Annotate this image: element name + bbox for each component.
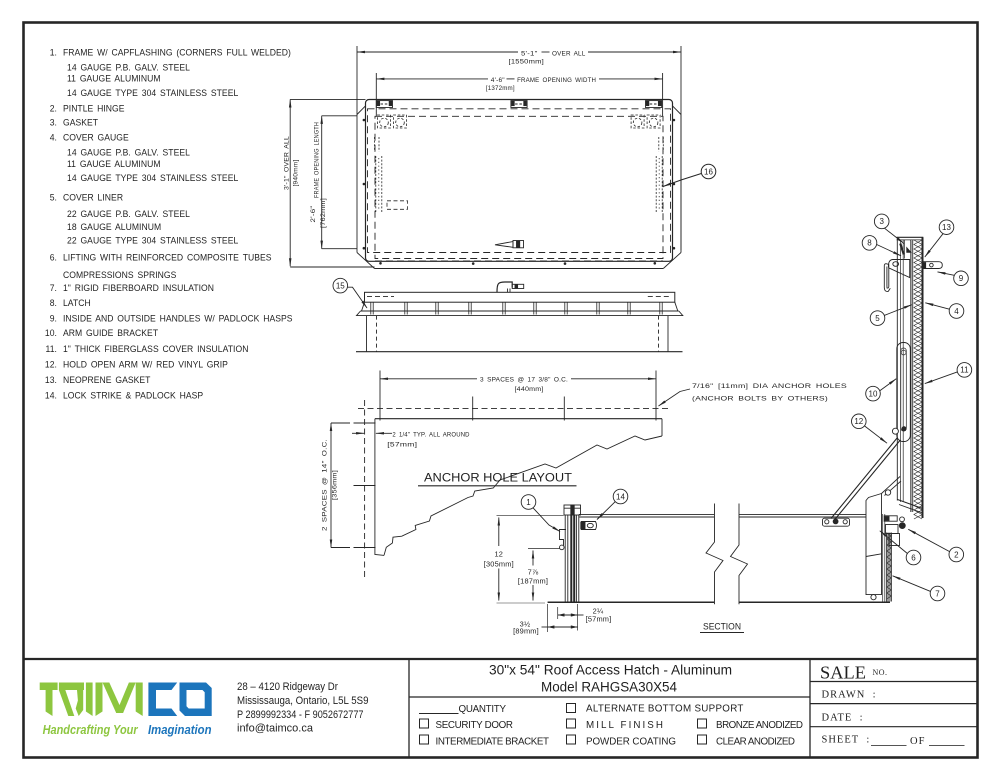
svg-text:COVER LINER: COVER LINER xyxy=(63,192,124,202)
svg-text:11: 11 xyxy=(960,366,969,375)
svg-text:3'-1" OVER ALL: 3'-1" OVER ALL xyxy=(284,136,291,190)
svg-text:11.: 11. xyxy=(46,344,57,354)
svg-text:5: 5 xyxy=(875,314,880,323)
svg-text:6: 6 xyxy=(911,553,916,562)
svg-text:GASKET: GASKET xyxy=(63,117,99,127)
svg-text:4: 4 xyxy=(954,307,959,316)
svg-text:FRAME OPENING LENGTH: FRAME OPENING LENGTH xyxy=(314,122,321,198)
svg-text:12: 12 xyxy=(494,550,503,559)
svg-text:3.: 3. xyxy=(50,117,57,127)
svg-text:SECURITY DOOR: SECURITY DOOR xyxy=(436,720,514,731)
svg-text:12: 12 xyxy=(854,417,863,426)
svg-text:DRAWN :: DRAWN : xyxy=(822,690,877,701)
svg-text:8: 8 xyxy=(867,239,872,248)
svg-text:3 SPACES @ 17 3/8" O.C.: 3 SPACES @ 17 3/8" O.C. xyxy=(480,376,568,383)
svg-text:7/16" [11mm] DIA ANCHOR HOLES: 7/16" [11mm] DIA ANCHOR HOLES xyxy=(692,383,847,390)
svg-text:INSIDE AND OUTSIDE HANDLES W/: INSIDE AND OUTSIDE HANDLES W/ PADLOCK HA… xyxy=(63,313,293,323)
svg-text:Mississauga, Ontario, L5L 5S9: Mississauga, Ontario, L5L 5S9 xyxy=(237,695,369,707)
svg-text:8.: 8. xyxy=(50,298,57,308)
svg-text:[1550mm]: [1550mm] xyxy=(509,59,545,66)
svg-text:MILL FINISH: MILL FINISH xyxy=(586,720,663,731)
svg-text:Imagination: Imagination xyxy=(148,723,212,737)
svg-text:9: 9 xyxy=(959,274,964,283)
svg-text:1" RIGID FIBERBOARD INSULATION: 1" RIGID FIBERBOARD INSULATION xyxy=(63,283,214,293)
svg-text:[187mm]: [187mm] xyxy=(518,577,548,586)
svg-text:4.: 4. xyxy=(50,132,57,142)
svg-text:12.: 12. xyxy=(45,359,57,369)
svg-text:16: 16 xyxy=(704,167,713,176)
svg-text:7⅞: 7⅞ xyxy=(528,568,539,577)
svg-text:14 GAUGE TYPE 304 STAINLESS ST: 14 GAUGE TYPE 304 STAINLESS STEEL xyxy=(67,88,238,98)
svg-text:7.: 7. xyxy=(50,283,57,293)
svg-text:[356mm]: [356mm] xyxy=(332,470,339,500)
svg-text:[440mm]: [440mm] xyxy=(515,386,544,393)
svg-text:10: 10 xyxy=(869,389,878,398)
svg-text:14 GAUGE P.B. GALV. STEEL: 14 GAUGE P.B. GALV. STEEL xyxy=(67,147,190,157)
svg-text:14 GAUGE P.B. GALV. STEEL: 14 GAUGE P.B. GALV. STEEL xyxy=(67,62,190,72)
svg-text:2 SPACES @ 14" O.C.: 2 SPACES @ 14" O.C. xyxy=(322,439,329,531)
svg-text:1" THICK FIBERGLASS COVER INSU: 1" THICK FIBERGLASS COVER INSULATION xyxy=(63,344,248,354)
svg-text:13.: 13. xyxy=(45,375,57,385)
svg-text:11 GAUGE ALUMINUM: 11 GAUGE ALUMINUM xyxy=(67,73,161,83)
svg-text:14 GAUGE TYPE 304 STAINLESS ST: 14 GAUGE TYPE 304 STAINLESS STEEL xyxy=(67,173,238,183)
svg-text:22 GAUGE TYPE 304 STAINLESS ST: 22 GAUGE TYPE 304 STAINLESS STEEL xyxy=(67,235,238,245)
svg-text:info@taimco.ca: info@taimco.ca xyxy=(237,723,314,735)
svg-text:LATCH: LATCH xyxy=(63,298,91,308)
svg-text:CLEAR ANODIZED: CLEAR ANODIZED xyxy=(716,737,795,748)
svg-text:FRAME OPENING WIDTH: FRAME OPENING WIDTH xyxy=(517,77,596,84)
svg-text:[1372mm]: [1372mm] xyxy=(486,85,515,92)
svg-text:LIFTING WITH REINFORCED COMPOS: LIFTING WITH REINFORCED COMPOSITE TUBES xyxy=(63,252,272,262)
svg-text:ANCHOR HOLE LAYOUT: ANCHOR HOLE LAYOUT xyxy=(424,473,572,485)
svg-text:Handcrafting Your: Handcrafting Your xyxy=(43,723,139,737)
svg-text:7: 7 xyxy=(935,589,940,598)
svg-text:6.: 6. xyxy=(50,252,57,262)
svg-text:COVER GAUGE: COVER GAUGE xyxy=(63,132,129,142)
svg-text:SECTION: SECTION xyxy=(703,622,741,633)
svg-text:18 GAUGE ALUMINUM: 18 GAUGE ALUMINUM xyxy=(67,222,161,232)
svg-text:10.: 10. xyxy=(45,328,57,338)
svg-text:SHEET :: SHEET : xyxy=(822,735,871,746)
svg-text:5'-1": 5'-1" xyxy=(521,50,538,57)
svg-text:OVER ALL: OVER ALL xyxy=(552,50,586,57)
svg-text:9.: 9. xyxy=(50,313,57,323)
svg-text:LOCK STRIKE & PADLOCK HASP: LOCK STRIKE & PADLOCK HASP xyxy=(63,390,203,400)
svg-text:[57mm]: [57mm] xyxy=(387,441,417,448)
svg-text:5.: 5. xyxy=(50,192,57,202)
svg-text:1.: 1. xyxy=(50,47,57,57)
svg-text:[89mm]: [89mm] xyxy=(513,627,539,636)
svg-text:BRONZE ANODIZED: BRONZE ANODIZED xyxy=(716,720,803,731)
svg-text:11 GAUGE ALUMINUM: 11 GAUGE ALUMINUM xyxy=(67,159,161,169)
svg-text:[762mm]: [762mm] xyxy=(320,198,327,228)
svg-text:22 GAUGE P.B. GALV. STEEL: 22 GAUGE P.B. GALV. STEEL xyxy=(67,209,190,219)
svg-text:28 – 4120 Ridgeway Dr: 28 – 4120 Ridgeway Dr xyxy=(237,681,338,693)
svg-text:2'-6": 2'-6" xyxy=(310,205,317,222)
svg-text:P 2899992334 - F 9052672777: P 2899992334 - F 9052672777 xyxy=(237,709,364,721)
svg-text:(ANCHOR BOLTS BY OTHERS): (ANCHOR BOLTS BY OTHERS) xyxy=(692,396,828,403)
svg-text:13: 13 xyxy=(942,223,951,232)
svg-text:14: 14 xyxy=(616,492,625,501)
svg-text:POWDER COATING: POWDER COATING xyxy=(586,737,676,748)
svg-text:[305mm]: [305mm] xyxy=(484,560,514,569)
svg-text:[940mm]: [940mm] xyxy=(293,160,300,187)
svg-text:14.: 14. xyxy=(45,390,57,400)
svg-text:HOLD OPEN ARM W/ RED VINYL GRI: HOLD OPEN ARM W/ RED VINYL GRIP xyxy=(63,359,228,369)
svg-text:2 1/4" TYP. ALL AROUND: 2 1/4" TYP. ALL AROUND xyxy=(392,431,469,438)
svg-text:NEOPRENE GASKET: NEOPRENE GASKET xyxy=(63,375,151,385)
svg-text:2: 2 xyxy=(954,550,959,559)
svg-text:QUANTITY: QUANTITY xyxy=(459,704,507,715)
svg-text:NO.: NO. xyxy=(873,668,888,677)
svg-text:ALTERNATE BOTTOM SUPPORT: ALTERNATE BOTTOM SUPPORT xyxy=(586,704,743,715)
svg-text:OF: OF xyxy=(910,736,925,747)
svg-text:[57mm]: [57mm] xyxy=(586,615,612,624)
svg-text:FRAME W/ CAPFLASHING (CORNERS: FRAME W/ CAPFLASHING (CORNERS FULL WELDE… xyxy=(63,47,291,57)
svg-text:4'-6": 4'-6" xyxy=(491,77,505,84)
svg-text:COMPRESSIONS SPRINGS: COMPRESSIONS SPRINGS xyxy=(63,270,176,280)
svg-text:ARM GUIDE BRACKET: ARM GUIDE BRACKET xyxy=(63,328,159,338)
svg-text:SALE: SALE xyxy=(820,663,866,683)
svg-text:30"x 54" Roof Access Hatch - A: 30"x 54" Roof Access Hatch - Aluminum xyxy=(489,663,732,679)
svg-text:2.: 2. xyxy=(50,103,57,113)
svg-text:15: 15 xyxy=(336,281,345,290)
svg-text:DATE :: DATE : xyxy=(822,713,864,724)
svg-text:PINTLE HINGE: PINTLE HINGE xyxy=(63,103,125,113)
svg-text:INTERMEDIATE BRACKET: INTERMEDIATE BRACKET xyxy=(436,737,550,748)
svg-text:3: 3 xyxy=(879,217,884,226)
svg-text:Model RAHGSA30X54: Model RAHGSA30X54 xyxy=(541,680,677,696)
svg-text:1: 1 xyxy=(526,498,531,507)
